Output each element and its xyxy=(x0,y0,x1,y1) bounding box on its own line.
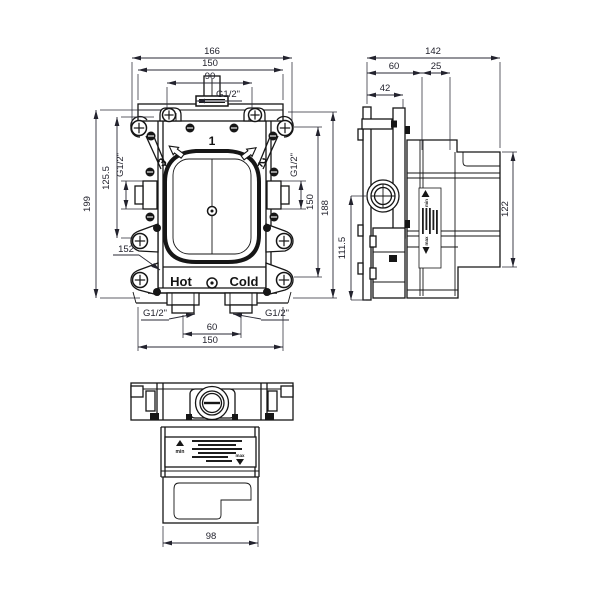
front-right-port xyxy=(267,168,289,222)
thread-right-label: G1/2" xyxy=(289,153,300,177)
screw-icon xyxy=(263,288,271,296)
dim-98: 98 xyxy=(206,531,217,542)
screw-icon xyxy=(153,288,161,296)
valve-rough-in-drawing: Hot Cold 1 3 2 166 150 90 G1/2" xyxy=(0,0,600,600)
front-top-lugs xyxy=(160,108,265,133)
thread-left-label: G1/2" xyxy=(115,153,126,177)
dim-152: 152 xyxy=(118,244,134,255)
front-view: Hot Cold 1 3 2 166 150 90 G1/2" xyxy=(82,46,337,351)
dim-60-side: 60 xyxy=(389,61,400,72)
dim-166: 166 xyxy=(204,46,220,57)
screw-icon xyxy=(263,224,271,232)
dim-25: 25 xyxy=(431,61,442,72)
bottom-lower-box xyxy=(163,477,258,523)
dim-199: 199 xyxy=(82,196,93,212)
sticker-min-label: min xyxy=(424,199,429,207)
front-left-port xyxy=(135,168,157,222)
dim-122: 122 xyxy=(500,201,511,217)
hot-label: Hot xyxy=(170,274,192,289)
dim-150-top: 150 xyxy=(202,58,218,69)
dim-150-right: 150 xyxy=(305,194,316,210)
cold-label: Cold xyxy=(230,274,259,289)
sticker-min-label: min xyxy=(176,449,185,455)
bottom-mid-section: min max xyxy=(161,427,259,477)
dim-142: 142 xyxy=(425,46,441,57)
dim-111-5: 111.5 xyxy=(337,237,348,259)
thread-top-label: G1/2" xyxy=(216,89,240,100)
port-1-label: 1 xyxy=(209,134,216,148)
sticker-max-label: max xyxy=(235,453,245,458)
side-sticker: min max xyxy=(419,188,441,268)
dim-125-5: 125.5 xyxy=(101,166,112,190)
dim-60: 60 xyxy=(207,322,218,333)
technical-drawing-page: Hot Cold 1 3 2 166 150 90 G1/2" xyxy=(0,0,600,600)
bottom-view: min max 98 xyxy=(131,383,293,547)
dim-42: 42 xyxy=(380,83,391,94)
dim-150-bottom: 150 xyxy=(202,335,218,346)
thread-bottom-left-label: G1/2" xyxy=(143,308,167,319)
sticker-max-label: max xyxy=(424,236,429,246)
bottom-dimensions: 98 xyxy=(163,526,258,547)
thread-bottom-right-label: G1/2" xyxy=(265,308,289,319)
dim-90: 90 xyxy=(205,71,216,82)
bottom-bracket xyxy=(131,383,293,420)
dim-188: 188 xyxy=(320,200,331,216)
front-arch-cartridge xyxy=(165,151,259,262)
screw-icon xyxy=(153,224,161,232)
side-view: min max 142 60 25 42 xyxy=(337,46,517,300)
